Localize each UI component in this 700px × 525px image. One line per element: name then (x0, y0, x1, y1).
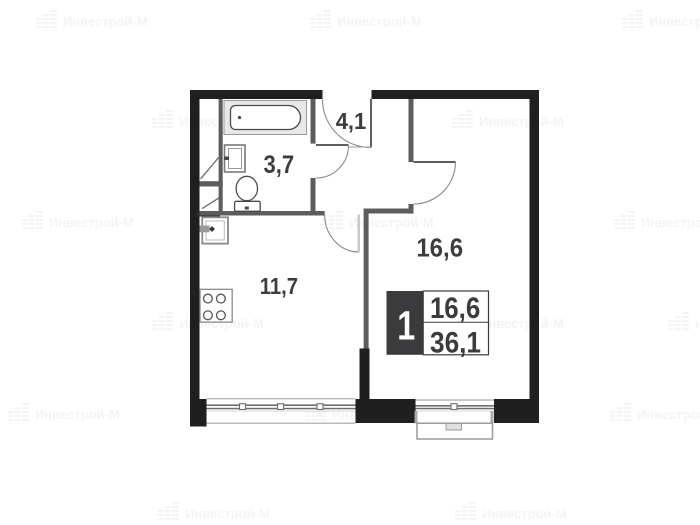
svg-text:16,6: 16,6 (416, 233, 463, 263)
svg-text:3,7: 3,7 (264, 151, 295, 179)
svg-text:36,1: 36,1 (430, 326, 481, 359)
svg-text:16,6: 16,6 (430, 292, 480, 325)
svg-text:4,1: 4,1 (336, 108, 367, 134)
svg-text:11,7: 11,7 (260, 273, 298, 299)
svg-text:1: 1 (397, 303, 415, 349)
